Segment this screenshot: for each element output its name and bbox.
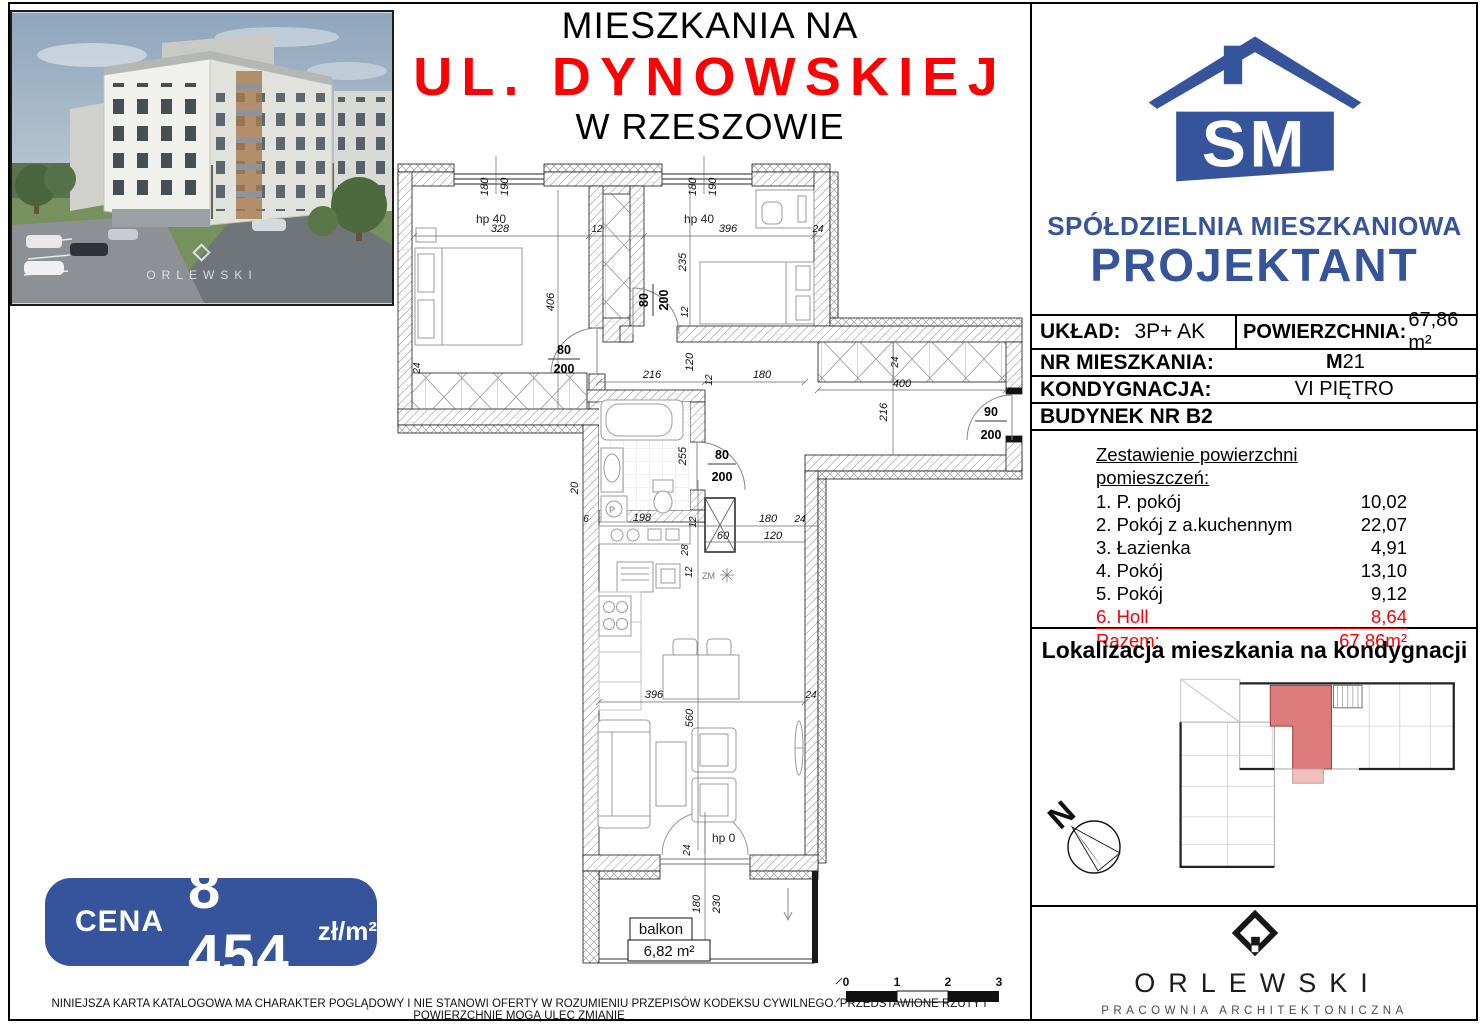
floor-label: KONDYGNACJA:: [1040, 378, 1212, 402]
room-area: 10,02: [1361, 490, 1407, 513]
dim-label: 400: [893, 378, 912, 390]
apartment-value-prefix: M: [1326, 351, 1343, 373]
room-areas-section: Zestawienie powierzchni pomieszczeń: 1. …: [1032, 431, 1477, 629]
washer-label: P: [609, 505, 615, 515]
price-unit: zł/m²: [318, 916, 377, 947]
dim-label: 255: [677, 446, 689, 466]
dim-label: 198: [633, 512, 652, 524]
dim-label: 180: [753, 369, 772, 381]
dim-label: 12: [680, 306, 691, 318]
room-name: 1. P. pokój: [1096, 490, 1181, 513]
highlighted-unit: [1270, 685, 1331, 769]
coop-name-line1: SPÓŁDZIELNIA MIESZKANIOWA: [1047, 211, 1462, 242]
door-size: 200: [657, 290, 671, 311]
dim-label: 190: [707, 177, 719, 196]
price-badge: CENA 8 454 zł/m²: [45, 878, 377, 966]
details-row-floor: KONDYGNACJA: VI PIĘTRO: [1032, 377, 1477, 404]
dim-label: 216: [642, 369, 662, 381]
point-symbol: [720, 568, 734, 582]
floor-value: VI PIĘTRO: [1212, 378, 1477, 401]
developer-logo-section: SM SPÓŁDZIELNIA MIESZKANIOWA PROJEKTANT: [1032, 4, 1477, 316]
dim-label: 230: [711, 894, 723, 914]
floor-plan: 180 190 180 190 hp 40 hp 40 328 12 396 2…: [390, 150, 1030, 1012]
dim-label: 24: [811, 224, 824, 235]
room-row: 5. Pokój 9,12: [1096, 582, 1407, 605]
dim-label: 20: [569, 481, 581, 495]
dim-label: 406: [545, 292, 557, 311]
location-heading: Lokalizacja mieszkania na kondygnacji: [1032, 637, 1477, 664]
door-size: 80: [715, 448, 729, 462]
price-label: CENA: [75, 905, 164, 939]
details-row-apartment: NR MIESZKANIA: M21: [1032, 350, 1477, 377]
room-name: 3. Łazienka: [1096, 536, 1191, 559]
dim-label: 560: [684, 708, 696, 727]
disclaimer: NINIEJSZA KARTA KATALOGOWA MA CHARAKTER …: [10, 998, 1028, 1022]
details-row-layout-area: UKŁAD: 3P+ AK POWIERZCHNIA: 67,86 m²: [1032, 316, 1477, 350]
highlighted-unit-balcony: [1293, 769, 1324, 783]
duct-shaft: [705, 498, 735, 552]
hp-label: hp 0: [712, 831, 736, 845]
dim-label: 180: [687, 177, 699, 196]
catalog-card: ORLEWSKI MIESZKANIA NA UL. DYNOWSKIEJ W …: [0, 0, 1483, 1026]
room-areas-heading: Zestawienie powierzchni pomieszczeń:: [1096, 443, 1407, 489]
balcony-label: balkon: [639, 921, 683, 938]
info-panel: SM SPÓŁDZIELNIA MIESZKANIOWA PROJEKTANT …: [1030, 4, 1477, 1019]
scale-tick: 0: [843, 975, 850, 989]
scale-tick: 3: [996, 975, 1003, 989]
room-row: 2. Pokój z a.kuchennym 22,07: [1096, 513, 1407, 536]
dim-label: 12: [704, 374, 715, 386]
floor-plan-drawing: 180 190 180 190 hp 40 hp 40 328 12 396 2…: [390, 150, 1030, 1012]
title-line-3: W RZESZOWIE: [392, 108, 1028, 147]
orlewski-diamond-logo: [1232, 910, 1278, 956]
door-size: 90: [984, 405, 998, 419]
dim-label: 12: [591, 224, 603, 235]
dim-label: 190: [499, 177, 511, 196]
room-name: 2. Pokój z a.kuchennym: [1096, 513, 1292, 536]
area-label: POWIERZCHNIA:: [1243, 321, 1406, 344]
zm-label: ZM: [702, 571, 715, 581]
room-area: 13,10: [1361, 559, 1407, 582]
building-label: BUDYNEK NR B2: [1040, 405, 1213, 429]
dim-label: 60: [717, 530, 730, 542]
details-row-building: BUDYNEK NR B2: [1032, 404, 1477, 431]
sm-monogram: SM: [1201, 106, 1307, 180]
dim-label: 120: [764, 530, 783, 542]
location-section: Lokalizacja mieszkania na kondygnacji: [1032, 629, 1477, 907]
photo-watermark-text: ORLEWSKI: [146, 268, 257, 282]
dim-label: 12: [684, 566, 695, 578]
area-cell: POWIERZCHNIA: 67,86 m²: [1235, 316, 1477, 348]
layout-value: 3P+ AK: [1134, 320, 1205, 344]
architect-name: ORLEWSKI: [1128, 968, 1381, 999]
room-row: 3. Łazienka 4,91: [1096, 536, 1407, 559]
room-area: 4,91: [1371, 536, 1407, 559]
dim-label: 396: [645, 689, 664, 701]
room-row: 4. Pokój 13,10: [1096, 559, 1407, 582]
scale-tick: 2: [945, 975, 952, 989]
title-line-1: MIESZKANIA NA: [392, 6, 1028, 46]
dim-label: 24: [682, 844, 693, 857]
architect-section: ORLEWSKI PRACOWNIA ARCHITEKTONICZNA: [1032, 907, 1477, 1019]
dim-label: 24: [804, 690, 817, 701]
door-size: 80: [557, 343, 571, 357]
layout-cell: UKŁAD: 3P+ AK: [1032, 316, 1235, 348]
dim-label: 12: [688, 516, 699, 528]
room-name: 5. Pokój: [1096, 582, 1163, 605]
title-line-2: UL. DYNOWSKIEJ: [392, 48, 1028, 106]
dim-label: 396: [719, 223, 738, 235]
architect-subtitle: PRACOWNIA ARCHITEKTONICZNA: [1101, 1005, 1408, 1017]
door-size: 200: [712, 470, 733, 484]
dim-label: 28: [680, 544, 691, 557]
room-area: 9,12: [1371, 582, 1407, 605]
dim-label: 180: [691, 894, 703, 913]
dim-label: 24: [890, 356, 901, 369]
coop-name-line2: PROJEKTANT: [1090, 242, 1418, 288]
building-render-graphic: ORLEWSKI: [12, 12, 392, 304]
room-row: 1. P. pokój 10,02: [1096, 490, 1407, 513]
layout-label: UKŁAD:: [1040, 320, 1120, 344]
dim-label: 24: [412, 362, 423, 375]
north-compass: N: [1044, 781, 1136, 893]
room-area: 8,64: [1371, 605, 1407, 628]
apartment-value: M21: [1214, 351, 1477, 374]
apartment-value-number: 21: [1343, 351, 1365, 373]
dim-label: 6: [583, 514, 589, 525]
building-base: [112, 209, 210, 227]
balcony-area: 6,82 m²: [644, 943, 695, 960]
door-size: 80: [637, 293, 651, 307]
door-size: 200: [981, 428, 1002, 442]
room-name: 4. Pokój: [1096, 559, 1163, 582]
dim-label: 235: [677, 252, 689, 272]
neighbour-building: [70, 103, 104, 211]
page-title: MIESZKANIA NA UL. DYNOWSKIEJ W RZESZOWIE: [392, 6, 1028, 147]
room-row-highlighted: 6. Holl 8,64: [1096, 605, 1407, 629]
dim-label: 120: [684, 352, 696, 371]
door-size: 200: [554, 362, 575, 376]
dim-label: 180: [759, 513, 778, 525]
apartment-label: NR MIESZKANIA:: [1040, 351, 1214, 375]
dim-label: 24: [793, 514, 806, 525]
scale-tick: 1: [894, 975, 901, 989]
floor-location-miniplan: [1150, 669, 1466, 873]
sm-house-logo: SM: [1145, 31, 1365, 207]
building-render: ORLEWSKI: [10, 10, 394, 306]
dim-label: 180: [479, 177, 491, 196]
room-area: 22,07: [1361, 513, 1407, 536]
room-name: 6. Holl: [1096, 605, 1148, 628]
hp-label: hp 40: [684, 212, 714, 226]
dim-label: 216: [878, 402, 890, 422]
dim-label: 328: [491, 223, 510, 235]
price-value: 8 454: [188, 855, 302, 989]
